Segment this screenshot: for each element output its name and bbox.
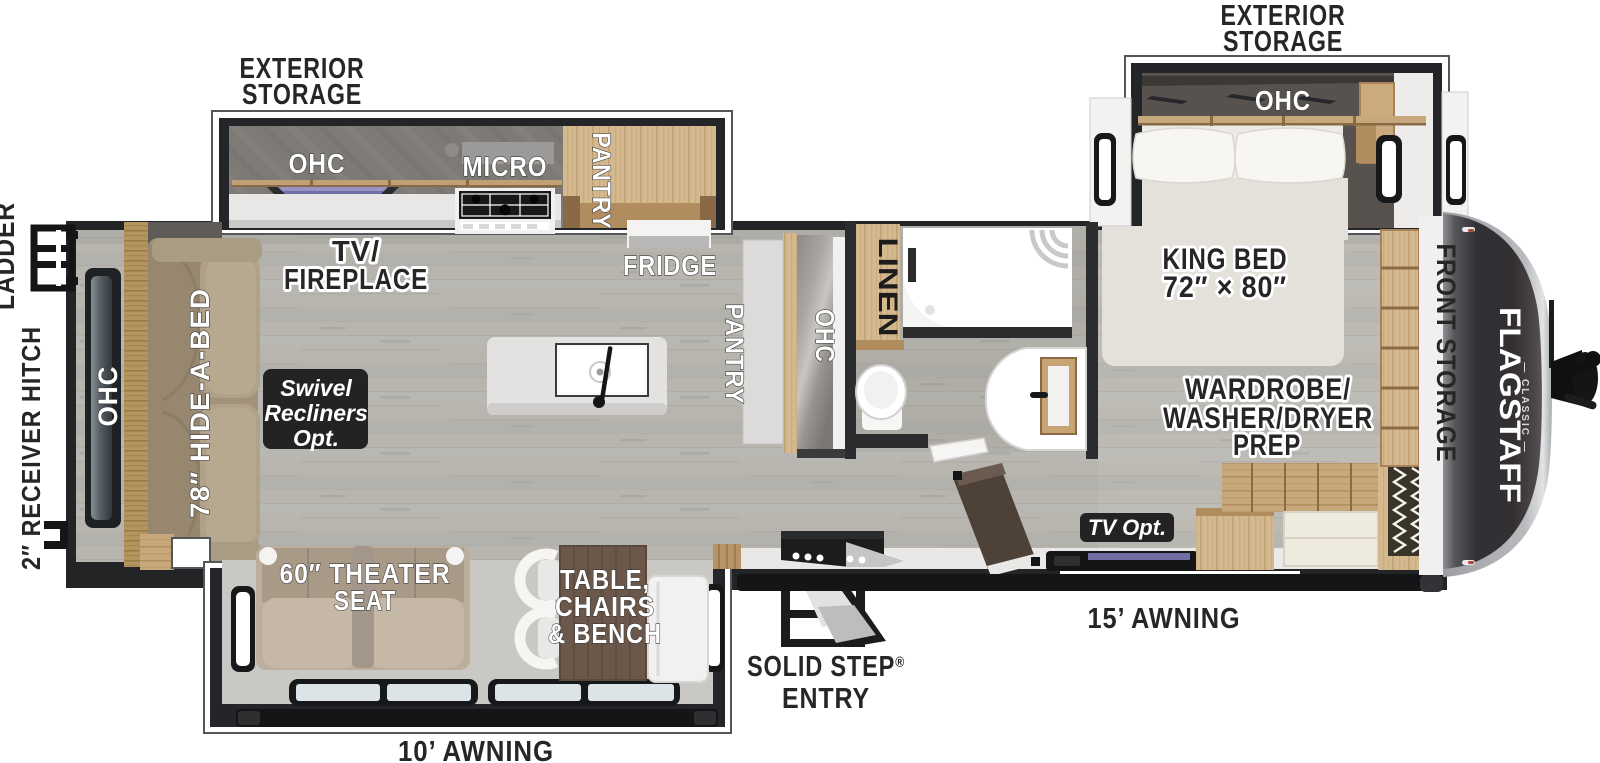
svg-text:Swivel: Swivel — [280, 375, 352, 401]
svg-text:Opt.: Opt. — [293, 425, 339, 451]
svg-text:— CLASSIC —: — CLASSIC — — [1519, 362, 1530, 453]
svg-text:FRONT STORAGE: FRONT STORAGE — [1431, 244, 1461, 463]
svg-text:OHC: OHC — [93, 366, 123, 427]
svg-text:2″ RECEIVER HITCH: 2″ RECEIVER HITCH — [16, 326, 46, 570]
svg-text:OHC: OHC — [810, 309, 840, 363]
svg-text:LINEN: LINEN — [873, 238, 903, 337]
svg-text:PREP: PREP — [1233, 429, 1301, 462]
svg-text:TV Opt.: TV Opt. — [1088, 515, 1166, 540]
svg-text:STORAGE: STORAGE — [1223, 26, 1343, 58]
svg-text:PANTRY: PANTRY — [587, 133, 615, 230]
svg-text:72″ × 80″: 72″ × 80″ — [1163, 271, 1287, 304]
svg-text:SEAT: SEAT — [334, 585, 396, 616]
svg-text:ENTRY: ENTRY — [782, 683, 870, 715]
svg-text:PANTRY: PANTRY — [720, 304, 748, 405]
svg-text:15’ AWNING: 15’ AWNING — [1088, 603, 1241, 635]
svg-text:STORAGE: STORAGE — [242, 79, 362, 111]
svg-text:OHC: OHC — [289, 148, 346, 179]
svg-text:MICRO: MICRO — [463, 151, 548, 182]
svg-text:FRIDGE: FRIDGE — [623, 250, 717, 281]
svg-text:10’ AWNING: 10’ AWNING — [398, 736, 554, 763]
svg-text:SOLID STEP®: SOLID STEP® — [747, 651, 905, 683]
svg-text:Recliners: Recliners — [264, 400, 368, 426]
svg-text:LADDER: LADDER — [0, 202, 20, 310]
svg-text:OHC: OHC — [1255, 85, 1311, 116]
svg-text:78″ HIDE-A-BED: 78″ HIDE-A-BED — [185, 288, 215, 518]
svg-text:FIREPLACE: FIREPLACE — [284, 264, 428, 296]
svg-text:& BENCH: & BENCH — [548, 618, 662, 649]
